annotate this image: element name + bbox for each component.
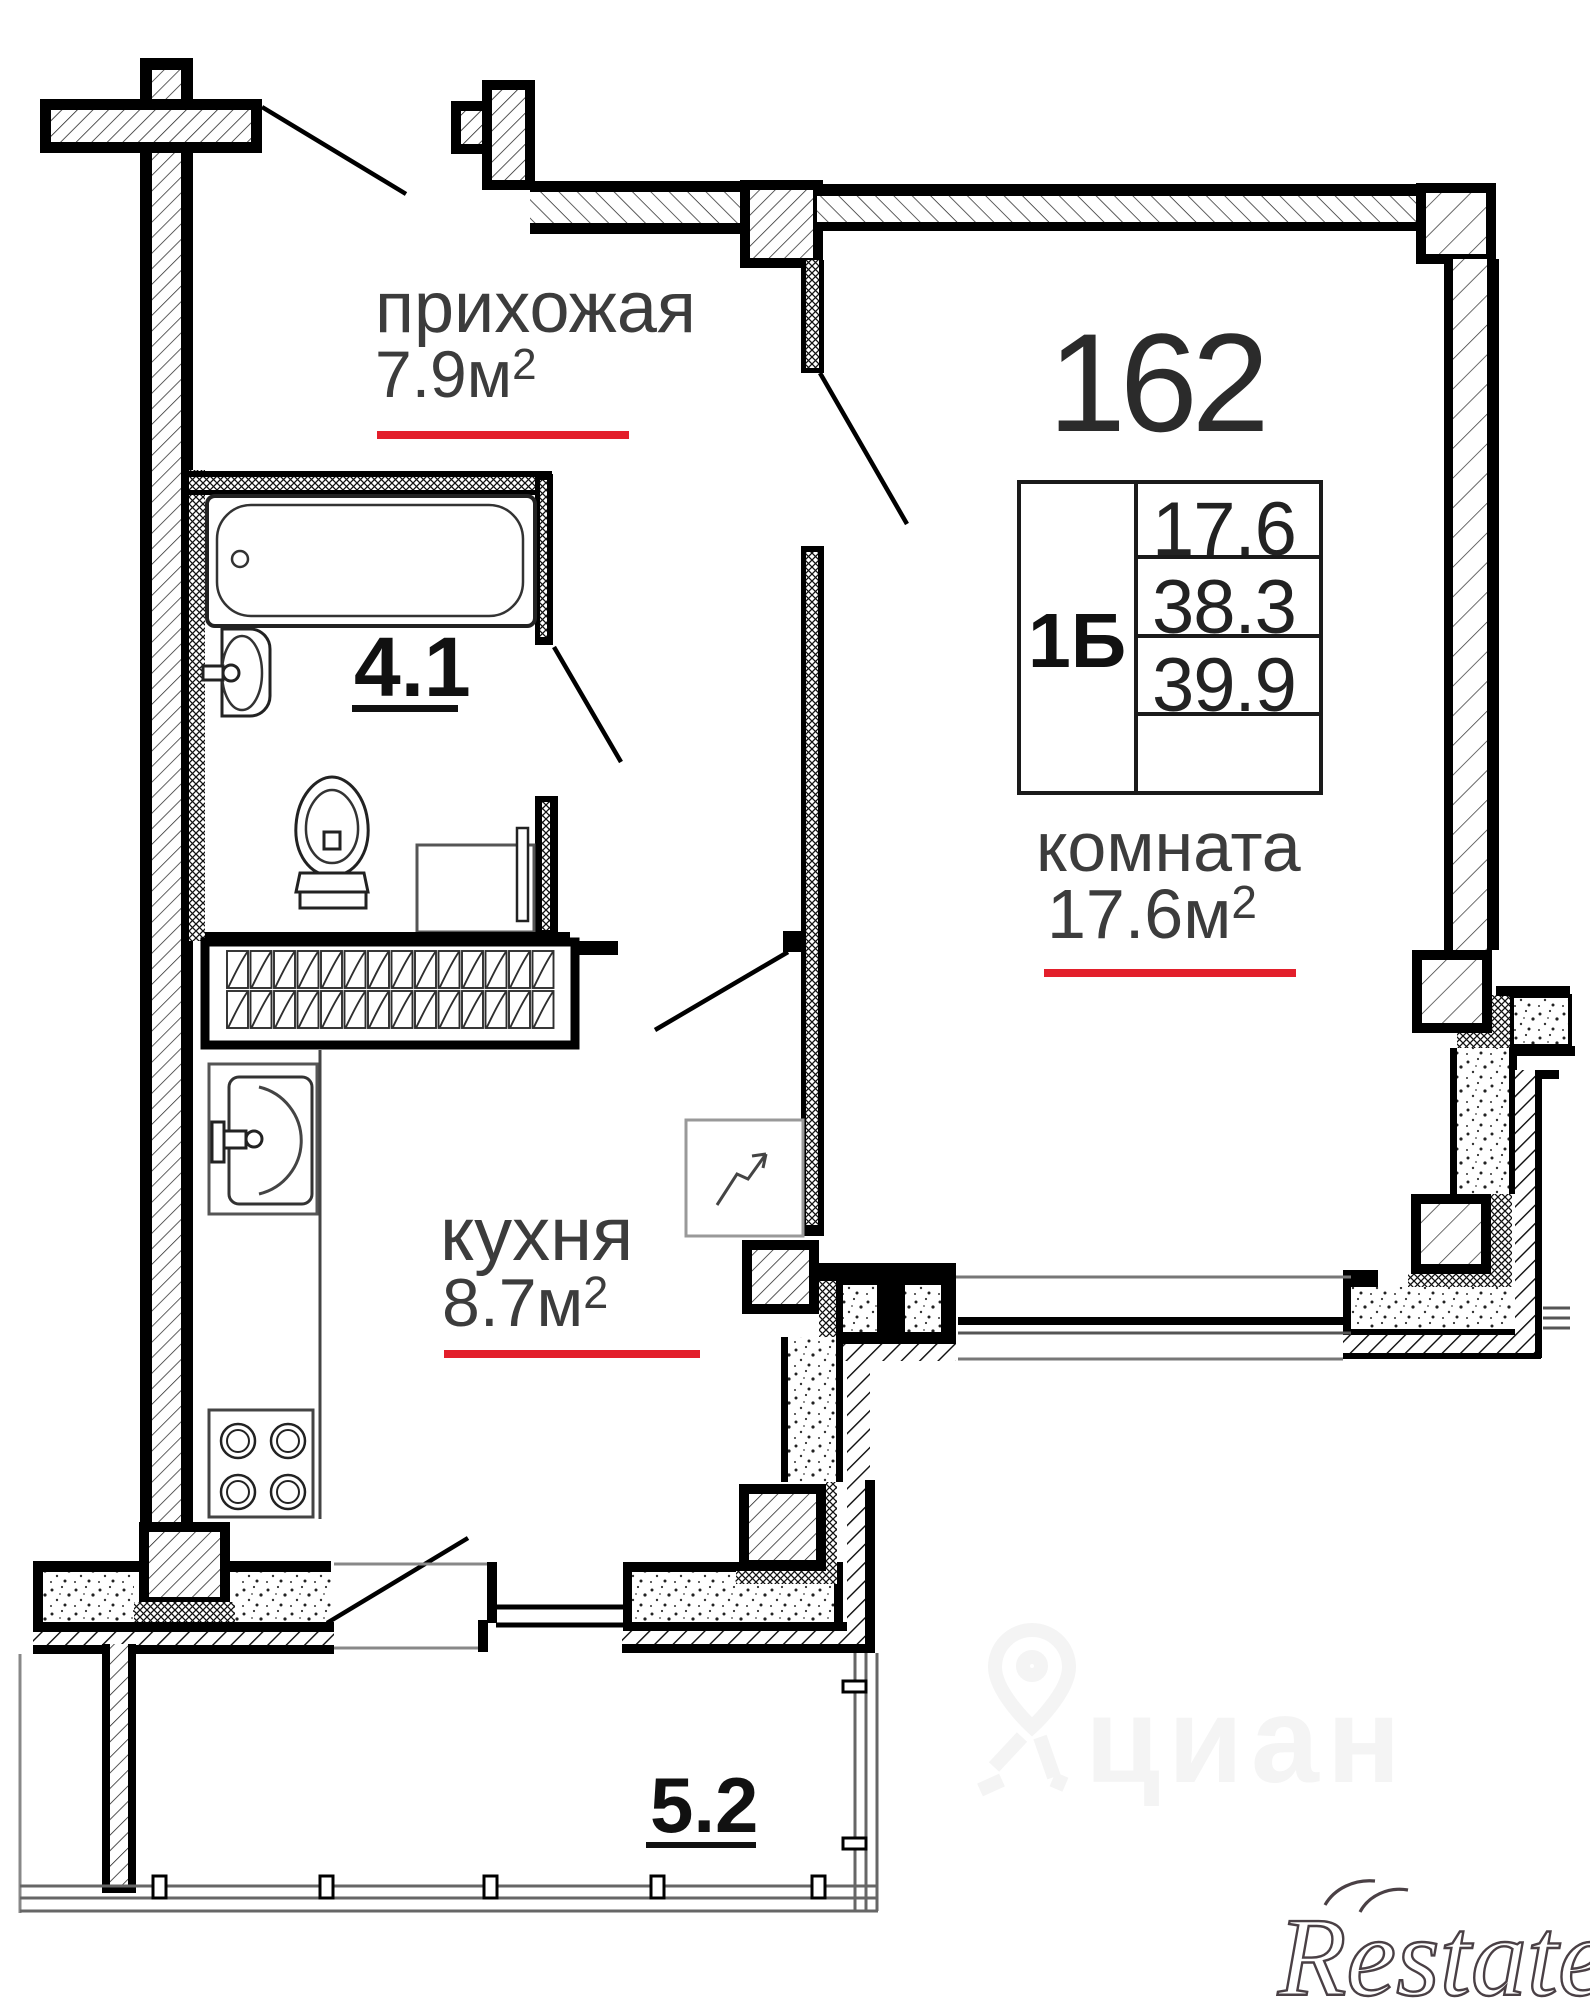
svg-text:4.1: 4.1 [354, 620, 471, 714]
svg-text:Restate: Restate [1277, 1896, 1590, 2000]
svg-text:162: 162 [1048, 304, 1264, 461]
svg-text:1Б: 1Б [1028, 598, 1126, 684]
svg-text:17.6м2: 17.6м2 [1047, 875, 1257, 953]
svg-text:5.2: 5.2 [650, 1761, 758, 1849]
svg-text:38.3: 38.3 [1152, 565, 1296, 650]
svg-text:17.6: 17.6 [1152, 487, 1296, 572]
svg-text:39.9: 39.9 [1152, 643, 1296, 728]
svg-text:прихожая: прихожая [375, 268, 696, 348]
svg-text:циан: циан [1085, 1672, 1409, 1808]
